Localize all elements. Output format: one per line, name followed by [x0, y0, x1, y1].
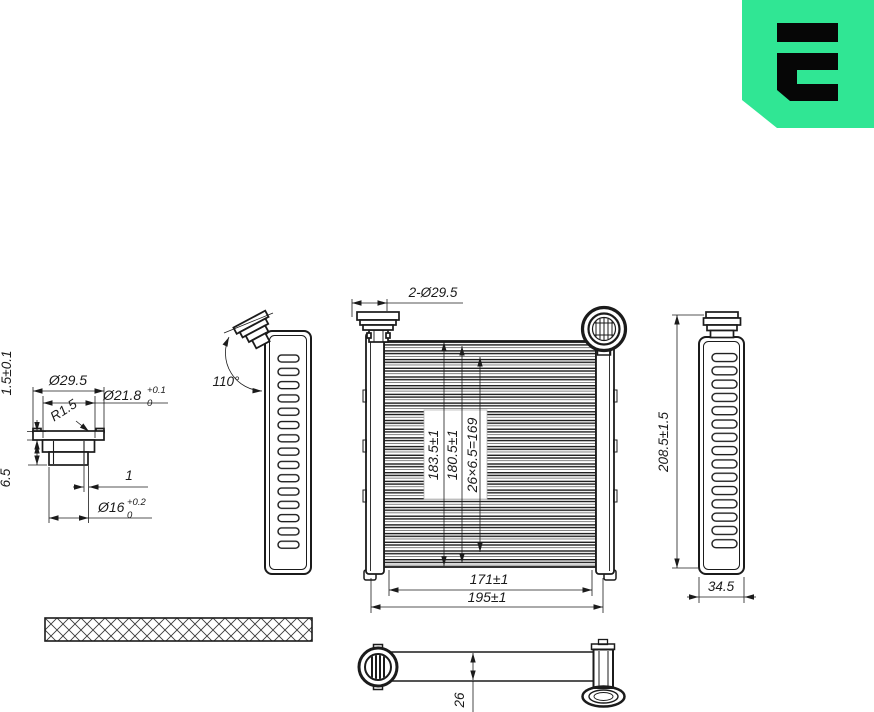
- ports-dim-label: 2-Ø29.5: [408, 285, 458, 300]
- overall-height-label: 208.5±1.5: [656, 412, 671, 473]
- flange-profile: [33, 429, 104, 466]
- side-view-right: 208.5±1.5 34.5: [656, 312, 756, 603]
- brand-logo: [742, 0, 874, 128]
- bottom-view: 26: [359, 640, 625, 712]
- flange-detail-view: Ø29.5 Ø21.8 +0.1 0 R1.5 1.5±0.1 6.5 1 Ø1…: [0, 351, 168, 523]
- front-view: 2-Ø29.5 183.5±1 180.5±1 26×6.5=169 171±1…: [352, 285, 626, 613]
- step-diameter-label: Ø21.8: [102, 387, 141, 403]
- radius-leader: [76, 421, 89, 432]
- right-tank: [596, 333, 617, 580]
- corner-radius-label: R1.5: [48, 396, 80, 424]
- fin-pack-height-label: 180.5±1: [444, 430, 460, 481]
- collar-height-label: 6.5: [0, 468, 13, 487]
- wall-thickness-label: 1: [125, 468, 133, 483]
- core-matrix: [384, 341, 596, 567]
- core-width-label: 171±1: [470, 571, 509, 587]
- slot-column: [711, 351, 738, 551]
- overall-width-label: 195±1: [468, 589, 507, 605]
- technical-drawing-page: Ø29.5 Ø21.8 +0.1 0 R1.5 1.5±0.1 6.5 1 Ø1…: [0, 0, 874, 712]
- step-tol-minus: 0: [147, 398, 153, 409]
- heater-core-drawing: Ø29.5 Ø21.8 +0.1 0 R1.5 1.5±0.1 6.5 1 Ø1…: [0, 0, 874, 712]
- bore-tol-minus: 0: [127, 510, 133, 521]
- port-angle-label: 110°: [213, 374, 241, 389]
- dim-wall-thickness: [73, 466, 148, 492]
- outer-diameter-label: Ø29.5: [48, 372, 87, 388]
- side-view-left: 110°: [213, 311, 311, 574]
- core-thickness-label: 26: [452, 692, 467, 709]
- seal-strip: [45, 618, 312, 641]
- bore-tol-plus: +0.2: [127, 497, 146, 508]
- flared-port: [583, 640, 625, 707]
- bore-diameter-label: Ø16: [97, 499, 125, 515]
- tube-pitch-label: 26×6.5=169: [464, 417, 480, 493]
- top-port-fitting: [704, 312, 741, 338]
- slot-column: [277, 352, 300, 551]
- inlet-fitting: [357, 312, 399, 342]
- core-height-label: 183.5±1: [425, 430, 441, 481]
- depth-label: 34.5: [708, 579, 735, 594]
- lip-thickness-label: 1.5±0.1: [0, 351, 14, 396]
- era-logo-glyph-icon: [777, 23, 838, 101]
- left-tank: [363, 333, 384, 580]
- step-tol-plus: +0.1: [147, 385, 166, 396]
